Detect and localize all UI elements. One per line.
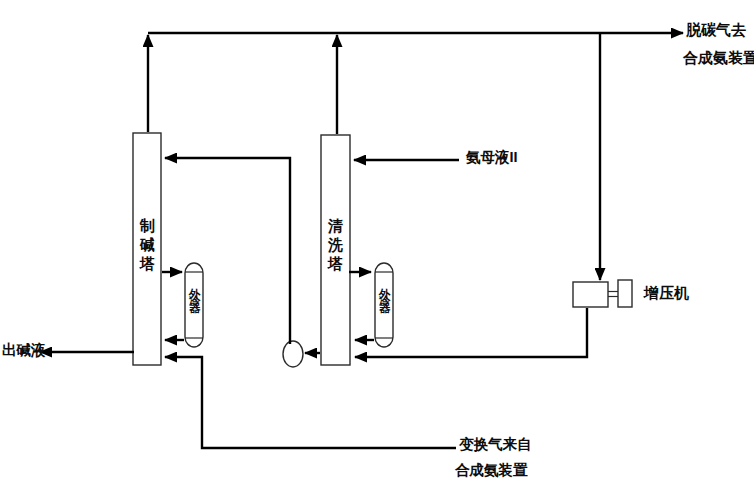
washing-tower-label: 清洗塔: [327, 206, 344, 263]
washing-cooler-shape: [375, 263, 393, 347]
shift-gas-label-line1: 变换气来自: [459, 437, 532, 453]
pipe-pump-to-soda-tower: [165, 158, 290, 344]
ammonia-mother-liquor-label: 氨母液II: [466, 150, 518, 166]
pump-shape: [283, 341, 303, 367]
compressor-motor-shape: [618, 280, 632, 307]
alkali-liquor-out-label: 出碱液: [2, 343, 46, 359]
booster-compressor-label: 增压机: [644, 285, 689, 302]
washing-cooler-label: 外冷器: [378, 279, 391, 300]
soda-cooler-label: 外冷器: [188, 279, 201, 300]
equipment-layer: [133, 133, 632, 367]
pipe-shift-gas-in: [165, 357, 456, 448]
process-flow-diagram: 脱碳气去 合成氨装置 氨母液II 增压机 出碱液 变换气来自 合成氨装置 制碱塔…: [0, 0, 754, 496]
diagram-canvas: [0, 0, 754, 496]
soda-tower-label: 制碱塔: [139, 206, 156, 263]
decarb-gas-label-line2: 合成氨装置: [683, 50, 754, 67]
soda-cooler-shape: [185, 263, 203, 347]
decarb-gas-label-line1: 脱碳气去: [686, 22, 746, 39]
shift-gas-label-line2: 合成氨装置: [455, 463, 528, 479]
compressor-body-shape: [573, 282, 608, 307]
